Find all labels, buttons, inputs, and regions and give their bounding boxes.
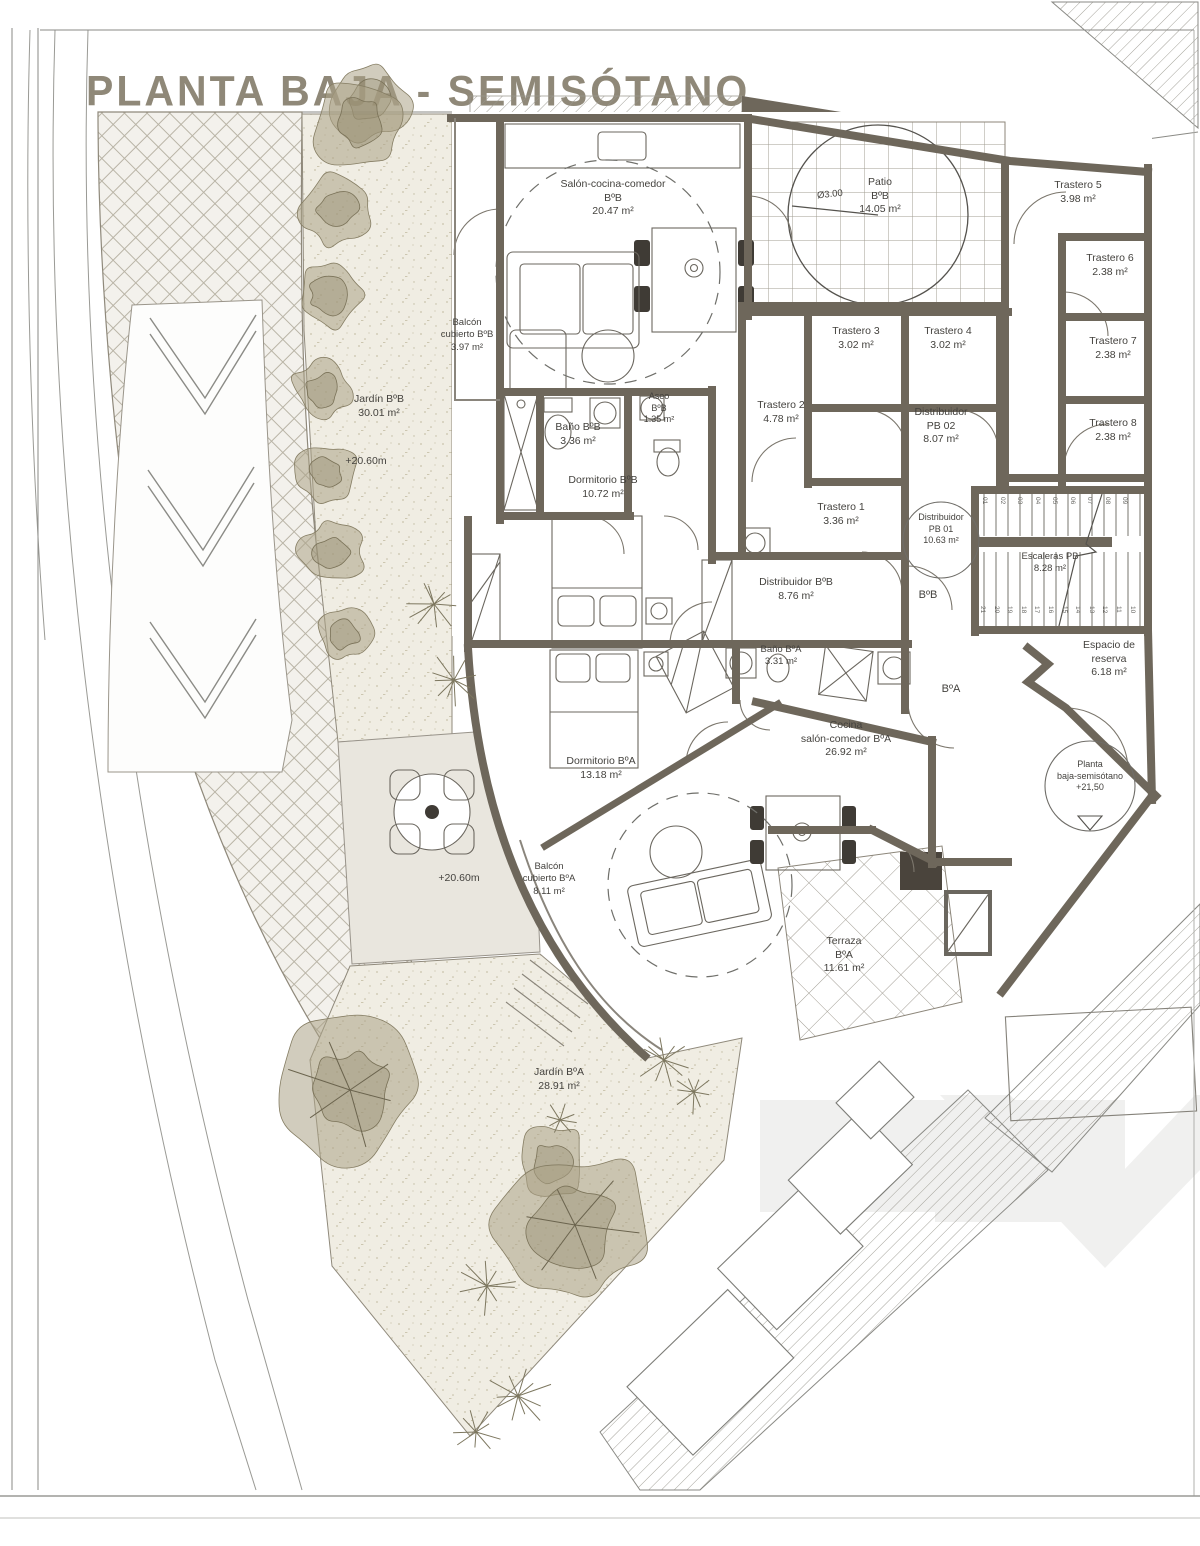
- stairs: [976, 492, 1148, 630]
- floor-plan-page: PLANTA BAJA - SEMISÓTANO: [0, 0, 1200, 1546]
- floor-plan-drawing: [0, 0, 1200, 1546]
